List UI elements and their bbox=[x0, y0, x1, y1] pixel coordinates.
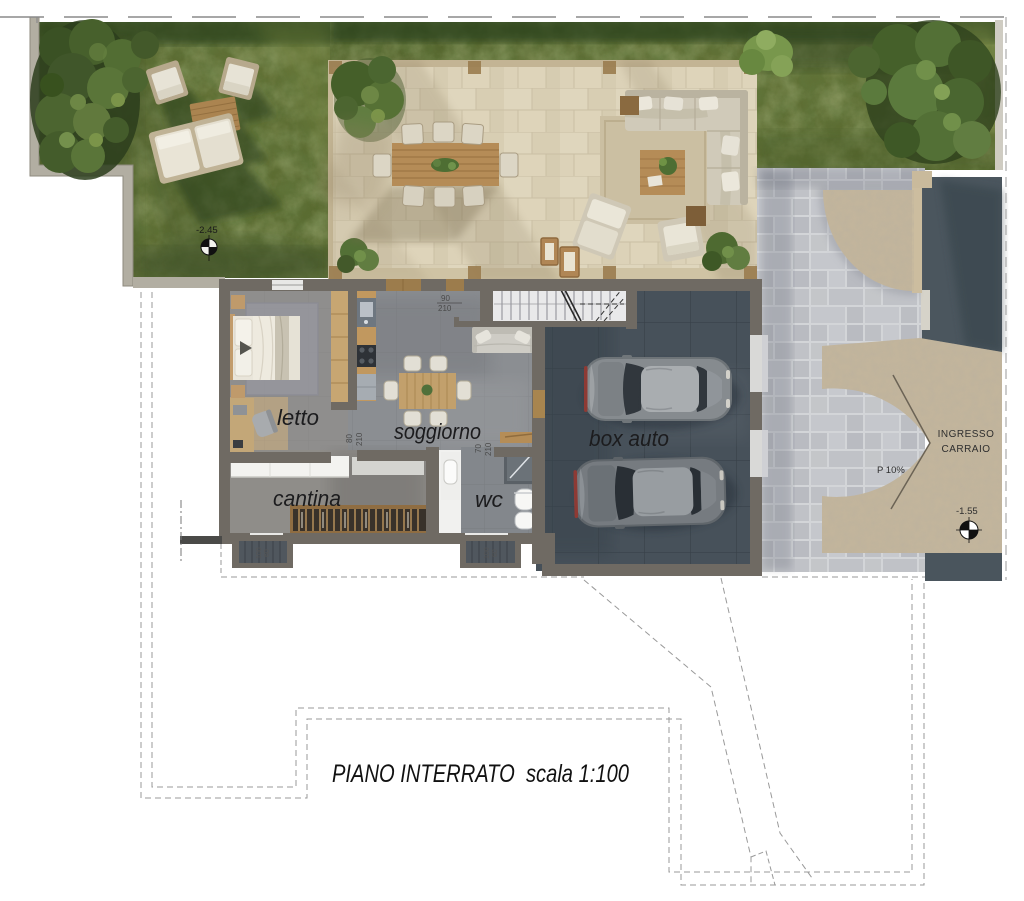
svg-text:box auto: box auto bbox=[589, 426, 669, 451]
svg-text:210: 210 bbox=[438, 304, 452, 313]
svg-text:soggiorno: soggiorno bbox=[394, 419, 481, 444]
svg-text:210: 210 bbox=[484, 442, 493, 456]
svg-text:210: 210 bbox=[355, 432, 364, 446]
svg-text:CARRAIO: CARRAIO bbox=[941, 444, 990, 455]
svg-text:70: 70 bbox=[474, 444, 483, 453]
svg-text:wc: wc bbox=[475, 487, 503, 512]
svg-text:PIANO INTERRATO scala 1:100: PIANO INTERRATO scala 1:100 bbox=[332, 760, 629, 788]
svg-text:INGRESSO: INGRESSO bbox=[938, 429, 995, 440]
svg-text:cantina: cantina bbox=[273, 486, 341, 511]
svg-text:90: 90 bbox=[441, 294, 450, 303]
svg-text:-1.55: -1.55 bbox=[956, 506, 978, 517]
svg-text:80: 80 bbox=[345, 434, 354, 443]
svg-text:P 10%: P 10% bbox=[877, 465, 905, 476]
svg-text:letto: letto bbox=[277, 405, 319, 430]
svg-text:60: 60 bbox=[264, 549, 271, 557]
svg-text:-2.45: -2.45 bbox=[196, 225, 218, 236]
svg-text:100: 100 bbox=[256, 547, 263, 559]
svg-text:100: 100 bbox=[484, 547, 491, 559]
svg-text:60: 60 bbox=[492, 549, 499, 557]
